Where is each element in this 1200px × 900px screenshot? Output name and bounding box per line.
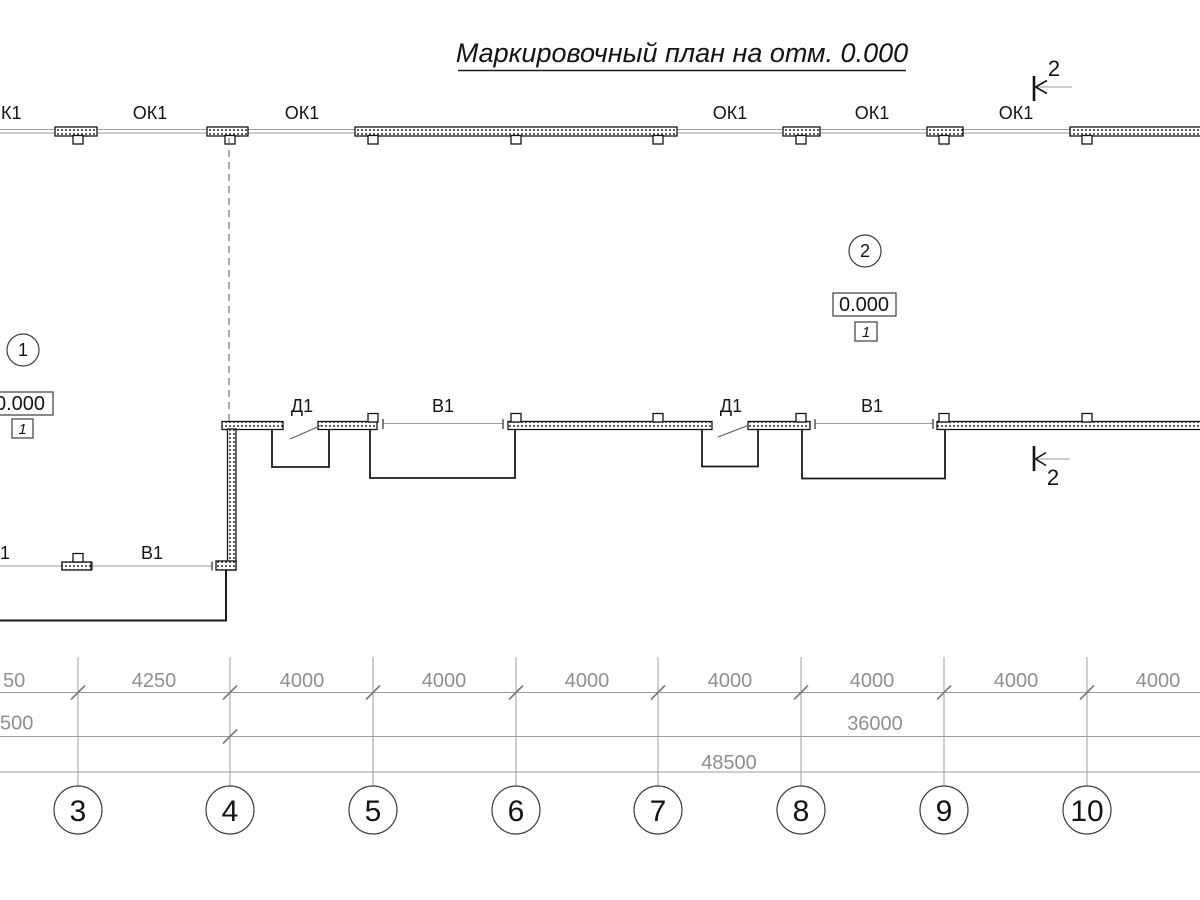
wall-pier	[207, 127, 248, 136]
window-label: В1	[861, 396, 883, 416]
section-mark-bottom: 2	[1034, 446, 1070, 490]
recess-outline	[802, 430, 945, 479]
window-label: В1	[432, 396, 454, 416]
grid-number: 5	[365, 795, 382, 828]
page-title: Маркировочный план на отм. 0.000	[456, 38, 908, 68]
section-mark-top: 2	[1034, 56, 1072, 101]
door-swing	[290, 426, 321, 440]
dimension-value: 500	[0, 713, 33, 735]
wall-segment	[937, 422, 1200, 430]
column-tab	[653, 414, 663, 423]
wall-pier	[1070, 127, 1200, 136]
wall-pier	[355, 127, 677, 136]
door-label: Д1	[291, 396, 313, 416]
window-label: 1	[0, 543, 10, 563]
door-swing	[718, 426, 748, 438]
column-tab	[368, 414, 378, 423]
grid-number: 8	[793, 795, 810, 828]
porch-outline	[702, 430, 758, 467]
wall-pier	[55, 127, 97, 136]
porch-outline	[272, 430, 329, 468]
column-tab	[511, 136, 521, 145]
title-block: Маркировочный план на отм. 0.000	[456, 38, 908, 71]
grid-number: 4	[222, 795, 239, 828]
grid-number: 10	[1070, 795, 1103, 828]
column-tab	[368, 136, 378, 145]
wall-corner-foot	[216, 561, 236, 570]
node-marker-1: 1 0.000 1	[0, 334, 53, 438]
node-marker-2: 2 0.000 1	[833, 235, 896, 341]
floor-plan-sheet: Маркировочный план на отм. 0.000 К1 ОК1 …	[0, 0, 1200, 900]
reference-number: 1	[18, 421, 26, 438]
window-label: ОК1	[713, 103, 748, 123]
wall-pier	[783, 127, 820, 136]
window-label: ОК1	[133, 103, 168, 123]
dimension-block: 50 4250 4000 4000 4000 4000 4000 4000 40…	[0, 657, 1200, 786]
dimension-value: 4000	[280, 670, 325, 692]
window-label: ОК1	[285, 103, 320, 123]
column-tab	[511, 414, 521, 423]
window-label: ОК1	[999, 103, 1034, 123]
grid-number: 9	[936, 795, 953, 828]
wall-segment-vertical	[228, 429, 237, 570]
wall-pier	[62, 562, 91, 570]
grid-number: 3	[70, 795, 87, 828]
column-tab	[653, 136, 663, 145]
left-end-wall: 1 В1	[0, 543, 226, 621]
window-label: ОК1	[855, 103, 890, 123]
section-number: 2	[1047, 465, 1059, 490]
section-number: 2	[1048, 56, 1060, 81]
door-label: Д1	[720, 396, 742, 416]
dimension-value: 4250	[132, 670, 177, 692]
elevation-value: 0.000	[0, 393, 45, 415]
dimension-value: 48500	[701, 752, 757, 774]
grid-number: 7	[650, 795, 667, 828]
dimension-value: 4000	[708, 670, 753, 692]
wall-pier	[927, 127, 963, 136]
dimension-value: 4000	[565, 670, 610, 692]
column-tab	[225, 136, 235, 145]
dimension-value: 4000	[850, 670, 895, 692]
reference-number: 1	[862, 324, 870, 341]
dimension-value: 4000	[422, 670, 467, 692]
wall-segment	[222, 422, 283, 430]
elevation-value: 0.000	[839, 294, 889, 316]
column-tab	[796, 136, 806, 145]
column-tab	[939, 414, 949, 423]
column-tab	[73, 554, 83, 563]
grid-bubbles: 3 4 5 6 7 8 9 10	[54, 786, 1111, 834]
recess-outline	[370, 430, 515, 479]
dimension-value: 4000	[994, 670, 1039, 692]
grid-number: 6	[508, 795, 525, 828]
dimension-value: 50	[3, 670, 25, 692]
wall-segment	[318, 422, 377, 430]
wall-segment	[748, 422, 810, 430]
column-tab	[73, 136, 83, 145]
window-label: К1	[1, 103, 22, 123]
window-label: В1	[141, 543, 163, 563]
dimension-value: 36000	[847, 713, 903, 735]
wall-segment	[508, 422, 712, 430]
node-number: 1	[18, 340, 28, 360]
column-tab	[939, 136, 949, 145]
column-tab	[1082, 136, 1092, 145]
dimension-value: 4000	[1136, 670, 1181, 692]
top-exterior-wall: К1 ОК1 ОК1 ОК1 ОК1 ОК1	[0, 103, 1200, 144]
building-outline	[0, 570, 226, 621]
floor-plan-canvas: Маркировочный план на отм. 0.000 К1 ОК1 …	[0, 0, 1200, 900]
node-number: 2	[860, 241, 870, 261]
column-tab	[796, 414, 806, 423]
column-tab	[1082, 414, 1092, 423]
